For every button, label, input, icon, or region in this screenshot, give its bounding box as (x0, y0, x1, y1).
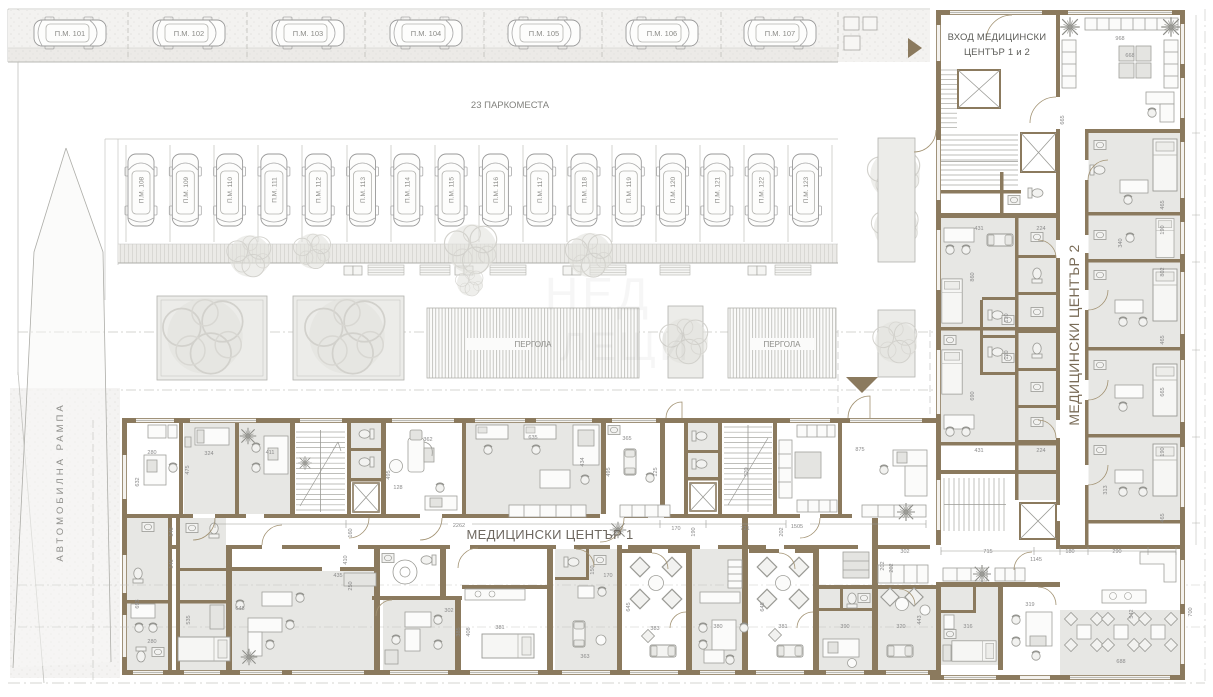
svg-text:280: 280 (147, 450, 156, 456)
svg-text:302: 302 (900, 549, 909, 555)
svg-text:688: 688 (1116, 659, 1125, 665)
svg-text:П.М. 116: П.М. 116 (493, 177, 500, 203)
svg-text:443: 443 (917, 615, 923, 624)
svg-text:ПЕРГОЛА: ПЕРГОЛА (763, 340, 801, 349)
svg-text:324: 324 (204, 451, 213, 457)
svg-text:202: 202 (779, 527, 785, 536)
svg-text:202: 202 (889, 563, 895, 572)
svg-text:410: 410 (343, 555, 349, 564)
svg-text:365: 365 (622, 436, 631, 442)
svg-text:НЕД: НЕД (545, 268, 652, 320)
svg-text:290: 290 (1112, 549, 1121, 555)
svg-text:411: 411 (266, 450, 275, 456)
svg-text:520: 520 (744, 467, 750, 476)
svg-text:542: 542 (1129, 609, 1135, 618)
svg-text:465: 465 (1160, 200, 1166, 209)
svg-text:146: 146 (169, 559, 175, 568)
svg-text:П.М. 121: П.М. 121 (714, 176, 721, 203)
svg-text:381: 381 (778, 624, 787, 630)
svg-text:П.М. 120: П.М. 120 (670, 176, 677, 203)
svg-text:П.М. 117: П.М. 117 (537, 177, 544, 203)
svg-text:280: 280 (147, 639, 156, 645)
svg-text:128: 128 (393, 485, 402, 491)
svg-text:431: 431 (974, 226, 983, 232)
svg-text:693: 693 (135, 599, 141, 608)
svg-text:150: 150 (590, 565, 596, 574)
svg-text:180: 180 (1065, 549, 1074, 555)
svg-text:АВТОМОБИЛНА РАМПА: АВТОМОБИЛНА РАМПА (55, 402, 66, 561)
svg-text:1505: 1505 (791, 524, 803, 530)
svg-text:495: 495 (386, 470, 392, 479)
svg-text:645: 645 (626, 602, 632, 611)
svg-text:632: 632 (135, 477, 141, 486)
svg-text:146: 146 (169, 527, 175, 536)
svg-text:495: 495 (606, 467, 612, 476)
svg-text:П.М. 104: П.М. 104 (411, 29, 441, 38)
svg-text:385: 385 (456, 627, 462, 636)
svg-text:190: 190 (1160, 447, 1166, 456)
svg-text:23 ПАРКОМЕСТА: 23 ПАРКОМЕСТА (471, 100, 550, 111)
svg-text:П.М. 103: П.М. 103 (293, 29, 323, 38)
svg-text:700: 700 (1188, 607, 1194, 616)
svg-text:465: 465 (1160, 513, 1166, 522)
svg-text:380: 380 (713, 624, 722, 630)
svg-text:635: 635 (528, 435, 537, 441)
svg-text:434: 434 (580, 457, 586, 466)
svg-text:190: 190 (1160, 225, 1166, 234)
svg-text:П.М. 107: П.М. 107 (765, 29, 795, 38)
svg-text:250: 250 (348, 581, 354, 590)
svg-text:645: 645 (760, 602, 766, 611)
svg-text:П.М. 106: П.М. 106 (647, 29, 677, 38)
svg-text:2262: 2262 (453, 523, 465, 529)
svg-text:319: 319 (1025, 602, 1034, 608)
svg-text:МЕДИЦИНСКИ ЦЕНТЪР 1: МЕДИЦИНСКИ ЦЕНТЪР 1 (466, 527, 633, 542)
svg-text:170: 170 (671, 526, 680, 532)
svg-text:363: 363 (580, 654, 589, 660)
svg-text:665: 665 (1160, 387, 1166, 396)
svg-text:П.М. 123: П.М. 123 (803, 176, 810, 203)
svg-text:875: 875 (855, 447, 864, 453)
svg-text:202: 202 (880, 561, 886, 570)
svg-text:715: 715 (983, 549, 992, 555)
svg-text:390: 390 (840, 624, 849, 630)
svg-text:313: 313 (1103, 485, 1109, 494)
svg-text:316: 316 (963, 624, 972, 630)
svg-text:535: 535 (186, 615, 192, 624)
svg-text:МЕДИЦИНСКИ ЦЕНТЪР 2: МЕДИЦИНСКИ ЦЕНТЪР 2 (1066, 244, 1082, 425)
svg-text:302: 302 (444, 608, 453, 614)
svg-text:125: 125 (653, 467, 659, 476)
svg-text:П.М. 108: П.М. 108 (139, 176, 146, 203)
svg-text:П.М. 111: П.М. 111 (271, 177, 278, 203)
svg-text:320: 320 (896, 624, 905, 630)
svg-text:ЛЕЩИ: ЛЕЩИ (560, 325, 691, 369)
svg-text:П.М. 110: П.М. 110 (227, 177, 234, 203)
svg-text:475: 475 (185, 465, 191, 474)
svg-text:П.М. 118: П.М. 118 (582, 177, 589, 203)
svg-text:668: 668 (1125, 53, 1134, 59)
svg-text:П.М. 114: П.М. 114 (404, 177, 411, 203)
svg-text:П.М. 115: П.М. 115 (449, 177, 456, 203)
svg-text:340: 340 (1118, 238, 1124, 247)
svg-text:П.М. 122: П.М. 122 (759, 176, 766, 203)
svg-text:190: 190 (691, 527, 697, 536)
svg-text:1145: 1145 (1030, 557, 1042, 563)
svg-text:408: 408 (466, 627, 472, 636)
svg-text:968: 968 (1115, 36, 1124, 42)
svg-text:П.М. 109: П.М. 109 (183, 176, 190, 203)
svg-text:П.М. 102: П.М. 102 (174, 29, 204, 38)
svg-text:648: 648 (235, 606, 244, 612)
svg-text:ВХОД МЕДИЦИНСКИ: ВХОД МЕДИЦИНСКИ (948, 32, 1047, 43)
svg-text:435: 435 (333, 573, 342, 579)
svg-text:120: 120 (1004, 350, 1010, 359)
svg-text:П.М. 113: П.М. 113 (360, 177, 367, 203)
svg-text:665: 665 (1060, 115, 1066, 124)
svg-text:383: 383 (650, 626, 659, 632)
svg-text:170: 170 (603, 573, 612, 579)
svg-text:465: 465 (1160, 335, 1166, 344)
svg-text:224: 224 (1036, 226, 1045, 232)
svg-text:431: 431 (974, 448, 983, 454)
svg-text:П.М. 112: П.М. 112 (316, 177, 323, 203)
svg-text:802: 802 (1160, 267, 1166, 276)
svg-text:ПЕРГОЛА: ПЕРГОЛА (514, 340, 552, 349)
svg-text:381: 381 (495, 625, 504, 631)
svg-text:П.М. 105: П.М. 105 (529, 29, 559, 38)
svg-text:690: 690 (970, 391, 976, 400)
svg-text:120: 120 (1004, 313, 1010, 322)
svg-text:160: 160 (348, 528, 354, 537)
svg-text:ЦЕНТЪР 1 и 2: ЦЕНТЪР 1 и 2 (964, 47, 1030, 58)
svg-text:П.М. 101: П.М. 101 (55, 29, 85, 38)
svg-text:П.М. 119: П.М. 119 (626, 177, 633, 203)
svg-text:224: 224 (1036, 448, 1045, 454)
svg-text:860: 860 (970, 272, 976, 281)
svg-text:721: 721 (740, 526, 749, 532)
svg-text:362: 362 (423, 437, 432, 443)
